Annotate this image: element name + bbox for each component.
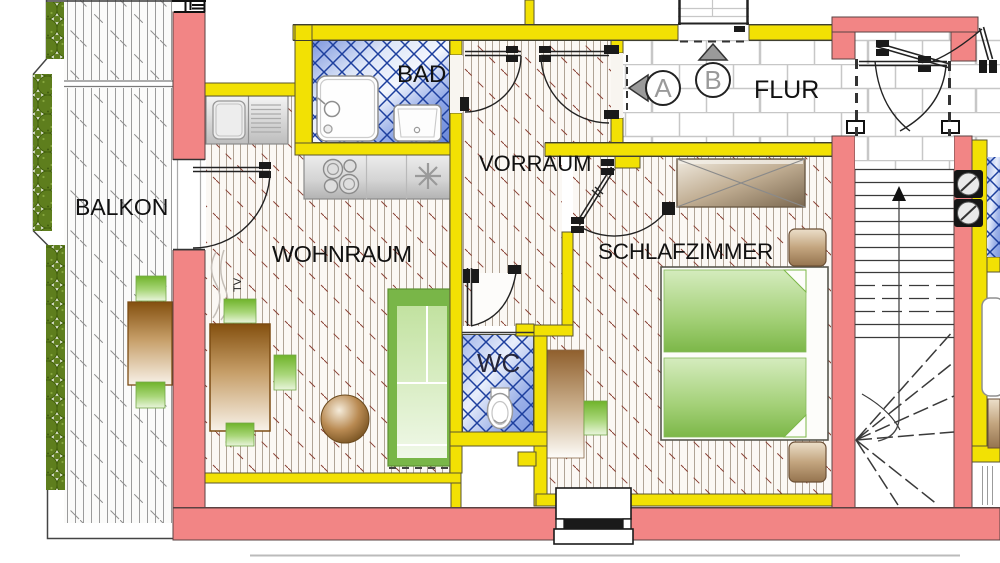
svg-text:WOHNRAUM: WOHNRAUM <box>272 241 412 267</box>
svg-text:A: A <box>654 73 672 103</box>
svg-text:BAD: BAD <box>397 61 446 88</box>
svg-text:BALKON: BALKON <box>75 194 168 220</box>
svg-text:FLUR: FLUR <box>754 76 819 104</box>
svg-text:SCHLAFZIMMER: SCHLAFZIMMER <box>598 239 773 264</box>
svg-text:VORRAUM: VORRAUM <box>479 151 591 176</box>
svg-text:TV: TV <box>232 277 244 292</box>
svg-text:B: B <box>704 65 721 95</box>
svg-text:WC: WC <box>477 348 520 378</box>
